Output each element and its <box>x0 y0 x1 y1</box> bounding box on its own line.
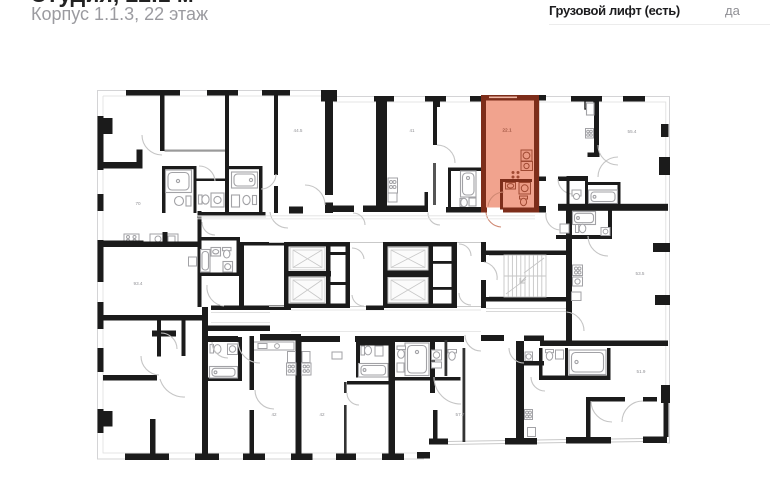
svg-text:55.4: 55.4 <box>628 129 637 134</box>
svg-text:93.4: 93.4 <box>134 281 143 286</box>
svg-text:57.7: 57.7 <box>456 412 465 417</box>
svg-text:53.5: 53.5 <box>636 271 645 276</box>
svg-text:42: 42 <box>271 412 277 417</box>
svg-text:42: 42 <box>319 412 325 417</box>
svg-text:44.5: 44.5 <box>294 128 303 133</box>
svg-text:51.9: 51.9 <box>637 369 646 374</box>
svg-text:70: 70 <box>135 201 141 206</box>
svg-text:41: 41 <box>409 128 415 133</box>
svg-text:22.1: 22.1 <box>502 128 512 134</box>
